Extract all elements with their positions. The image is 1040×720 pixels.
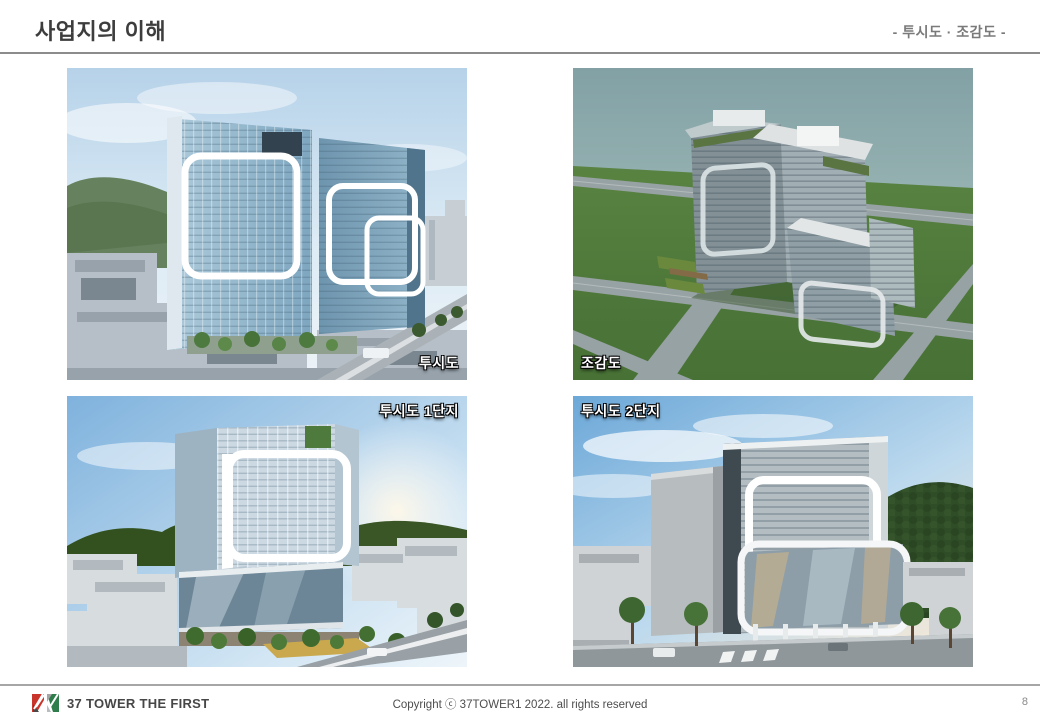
- complex1-rendering-image: [67, 396, 467, 667]
- perspective-rendering-image: [67, 68, 467, 380]
- presentation-slide: 사업지의 이해 - 투시도 · 조감도 -: [0, 0, 1040, 720]
- image-caption-birdseye: 조감도: [581, 353, 621, 373]
- page-number: 8: [1022, 696, 1028, 708]
- birdseye-rendering-image: [573, 68, 973, 380]
- birdseye-image-panel: 조감도: [573, 68, 973, 380]
- image-caption-perspective: 투시도: [419, 353, 459, 373]
- complex2-image-panel: 투시도 2단지: [573, 396, 973, 667]
- copyright-text: Copyright ⓒ 37TOWER1 2022. all rights re…: [0, 696, 1040, 712]
- slide-footer: 37 TOWER THE FIRST Copyright ⓒ 37TOWER1 …: [0, 684, 1040, 720]
- complex2-rendering-image: [573, 396, 973, 667]
- page-subtitle: - 투시도 · 조감도 -: [893, 22, 1006, 42]
- slide-header: 사업지의 이해 - 투시도 · 조감도 -: [0, 0, 1040, 54]
- image-caption-complex2: 투시도 2단지: [581, 401, 661, 421]
- perspective-image-panel: 투시도: [67, 68, 467, 380]
- image-caption-complex1: 투시도 1단지: [379, 401, 459, 421]
- page-title: 사업지의 이해: [35, 14, 166, 46]
- complex1-image-panel: 투시도 1단지: [67, 396, 467, 667]
